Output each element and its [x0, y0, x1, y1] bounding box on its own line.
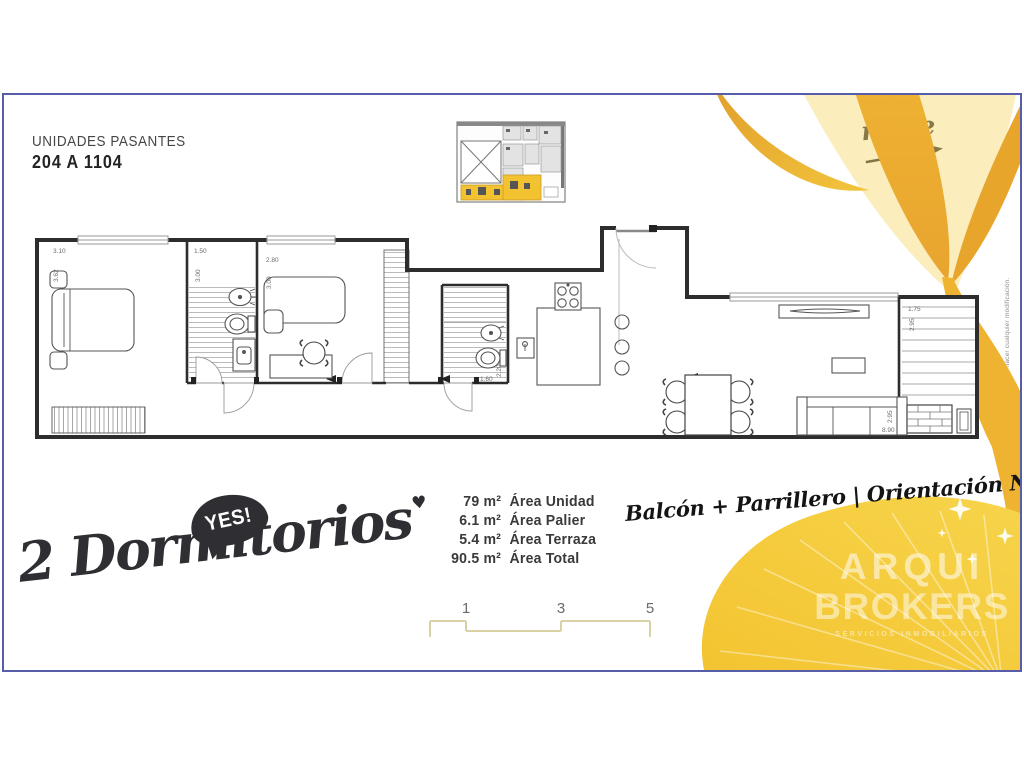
- star-icon: [949, 498, 972, 521]
- stars: [938, 498, 1014, 565]
- leaf-fan: [702, 497, 1020, 670]
- legal-note: *NOTA: Todo el equipamiento graficado es…: [1004, 207, 1011, 672]
- speech-bubble-text: YES!: [204, 503, 255, 536]
- brand-logo: ARQUI BROKERS SERVICIOS INMOBILIARIOS: [802, 547, 1022, 638]
- dim-bath1-h: 3.00: [195, 269, 202, 282]
- dim-bath1-w: 1.50: [194, 248, 207, 255]
- dim-bath2-h: 2.20: [496, 364, 503, 377]
- area-label: Área Total: [510, 549, 580, 568]
- features-ribbon: Balcón + Parrillero | Orientación Norte: [624, 470, 1022, 526]
- area-label: Área Palier: [510, 511, 586, 530]
- speech-bubble-tail: [205, 543, 225, 561]
- terrace: [907, 405, 971, 433]
- area-value: 90.5 m²: [424, 549, 501, 568]
- dim-terrace-h: 2.95: [909, 318, 916, 331]
- area-label: Área Terraza: [510, 530, 597, 549]
- scale-bar: 1 3 5: [428, 597, 668, 643]
- brand-line1: ARQUI: [802, 547, 1022, 587]
- units-label: UNIDADES PASANTES: [32, 133, 186, 150]
- scale-tick: 3: [557, 600, 565, 617]
- scale-tick: 5: [646, 600, 654, 617]
- units-range: 204 A 1104: [32, 152, 186, 173]
- north-indicator: norte: [860, 109, 964, 170]
- dim-bedroom1-w: 3.10: [53, 248, 66, 255]
- flyer-page: UNIDADES PASANTES 204 A 1104: [0, 0, 1024, 768]
- area-row: 90.5 m² Área Total: [424, 549, 640, 568]
- unit-header: UNIDADES PASANTES 204 A 1104: [32, 133, 186, 173]
- star-icon: [938, 529, 947, 538]
- star-icon: [967, 554, 978, 565]
- flyer-card: UNIDADES PASANTES 204 A 1104: [2, 93, 1022, 672]
- dim-living-w: 8.90: [882, 427, 895, 434]
- key-plan-thumbnail: [454, 117, 570, 209]
- area-label: Área Unidad: [510, 492, 595, 511]
- brand-subtitle: SERVICIOS INMOBILIARIOS: [802, 631, 1022, 638]
- dim-bath2-w: 1.60: [480, 376, 493, 383]
- dim-bedroom1-h: 3.62: [53, 269, 60, 282]
- dim-bedroom2-h: 3.00: [266, 276, 273, 289]
- brand-line2: BROKERS: [802, 587, 1022, 627]
- dim-bedroom2-w: 2.80: [266, 257, 279, 264]
- floor-plan: 3.10 3.62 1.50 3.00 2.80 3.00 1.60 2.20 …: [30, 225, 980, 447]
- scale-tick: 1: [462, 600, 470, 617]
- leaf-blade: [704, 95, 869, 191]
- leaf-rays: [720, 511, 1002, 670]
- area-row: 79 m² Área Unidad: [424, 492, 640, 511]
- dim-terrace-w: 1.75: [908, 306, 921, 313]
- dim-living-h: 2.95: [887, 410, 894, 423]
- heart-icon: ♥: [410, 492, 427, 514]
- scale-line: [430, 621, 650, 637]
